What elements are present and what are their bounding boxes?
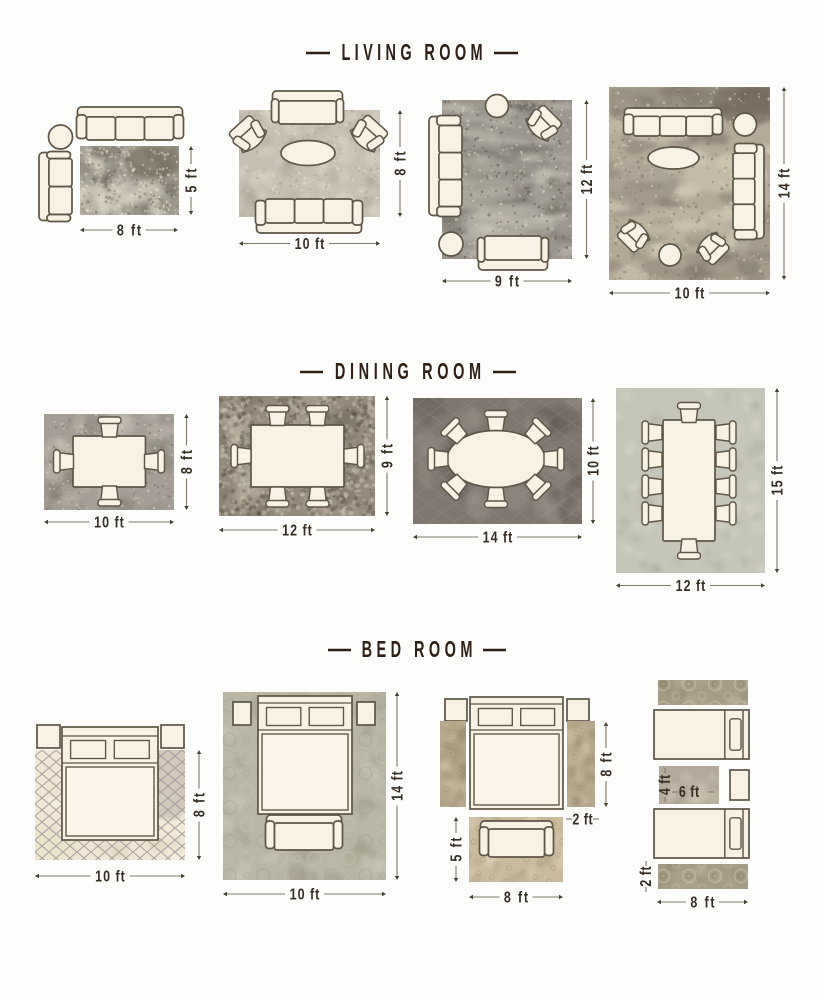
svg-text:8 ft: 8 ft (504, 889, 528, 907)
svg-text:8 ft: 8 ft (117, 222, 141, 240)
svg-text:8 ft: 8 ft (598, 752, 616, 776)
svg-text:9 ft: 9 ft (379, 444, 397, 468)
svg-text:8 ft: 8 ft (392, 151, 410, 175)
svg-text:8 ft: 8 ft (191, 793, 209, 817)
svg-text:8 ft: 8 ft (690, 894, 714, 912)
svg-text:5 ft: 5 ft (448, 837, 466, 861)
svg-text:BED ROOM: BED ROOM (362, 638, 473, 663)
svg-text:9 ft: 9 ft (495, 273, 519, 291)
svg-text:8 ft: 8 ft (179, 450, 197, 474)
svg-text:5 ft: 5 ft (183, 168, 201, 192)
svg-text:2 ft: 2 ft (638, 866, 656, 886)
svg-text:2 ft: 2 ft (572, 811, 592, 829)
svg-text:6 ft: 6 ft (679, 784, 699, 802)
svg-text:4 ft: 4 ft (657, 775, 675, 795)
